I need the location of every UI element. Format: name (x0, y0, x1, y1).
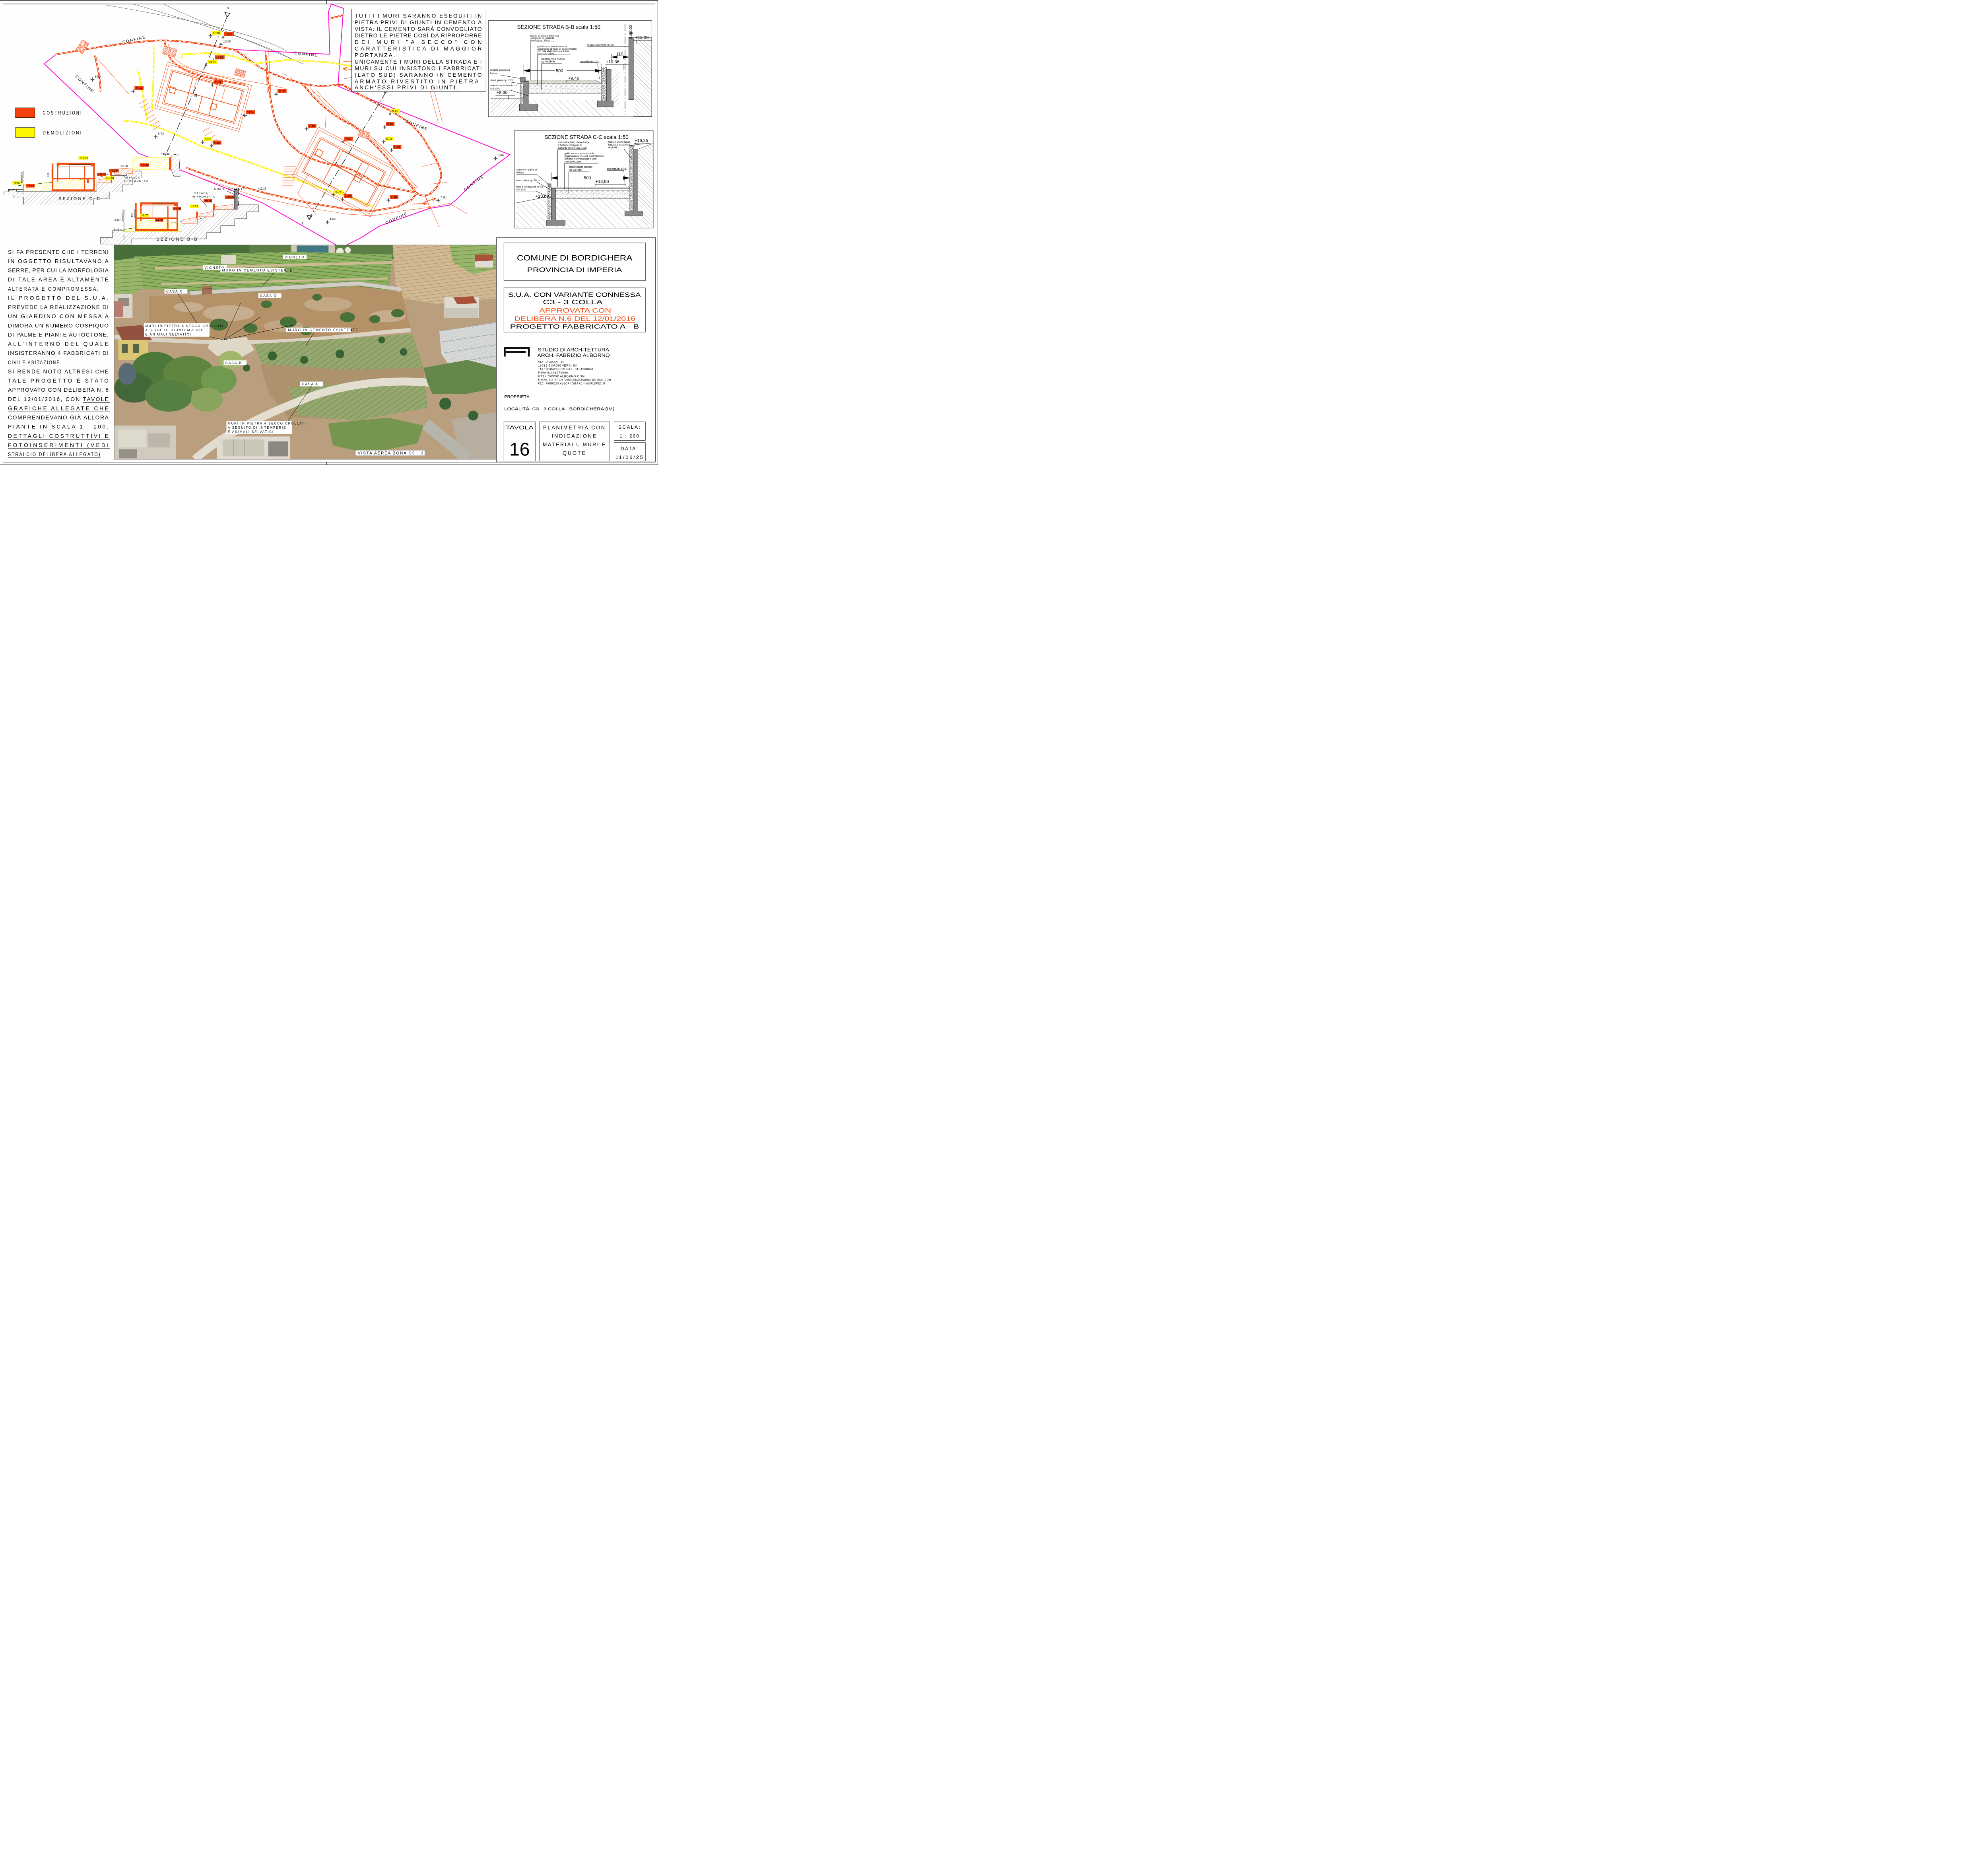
svg-text:DI PALME E PIANTE AUTOCTONE,: DI PALME E PIANTE AUTOCTONE, (8, 332, 110, 338)
svg-text:APPROVATA CON: APPROVATA CON (539, 307, 611, 314)
svg-text:muro e fondazione in c.a.: muro e fondazione in c.a. (490, 84, 518, 87)
svg-text:+12.26: +12.26 (635, 35, 649, 40)
svg-text:APPROVATO CON DELIBERA N. 6: APPROVATO CON DELIBERA N. 6 (8, 387, 110, 393)
svg-text:150: 150 (131, 213, 134, 217)
svg-text:+8.44: +8.44 (27, 185, 34, 188)
svg-text:MURI IN PIETRA A SECCO CROLLAT: MURI IN PIETRA A SECCO CROLLATI (228, 422, 306, 426)
svg-text:8.44: 8.44 (214, 141, 220, 144)
svg-text:QUOTE: QUOTE (563, 450, 586, 456)
svg-text:FOTOINSERIMENTI (VEDI: FOTOINSERIMENTI (VEDI (8, 442, 110, 448)
svg-text:spessore 15cm.: spessore 15cm. (565, 161, 582, 163)
svg-text:getto in c.a. eventualmente: getto in c.a. eventualmente (565, 152, 595, 155)
svg-text:muro in pietra locale: muro in pietra locale (608, 141, 631, 144)
svg-text:IN PROGETTO: IN PROGETTO (124, 180, 148, 183)
svg-text:150: 150 (47, 173, 50, 177)
svg-text:rivest. pietra sp. 20cm: rivest. pietra sp. 20cm (516, 179, 540, 182)
svg-text:4.60: 4.60 (330, 217, 336, 221)
svg-text:SCALA:: SCALA: (618, 424, 641, 430)
svg-text:MATERIALI, MURI E: MATERIALI, MURI E (543, 441, 606, 447)
svg-text:muro e fondazione in c.a.: muro e fondazione in c.a. (516, 185, 544, 188)
svg-text:sp varibile: sp varibile (569, 168, 582, 171)
svg-text:+4.60: +4.60 (156, 219, 163, 222)
svg-text:COMUNE DI BORDIGHERA: COMUNE DI BORDIGHERA (517, 254, 633, 262)
svg-text:500: 500 (584, 176, 591, 181)
svg-text:13.00: 13.00 (223, 39, 231, 43)
svg-text:livellante (binder) sp. 10cm: livellante (binder) sp. 10cm (558, 147, 588, 150)
svg-text:PROGETTO FABBRICATO A - B: PROGETTO FABBRICATO A - B (510, 323, 639, 330)
svg-text:agganciato al muro di contenim: agganciato al muro di contenimento (565, 155, 604, 158)
svg-text:7.40: 7.40 (346, 137, 351, 141)
svg-text:E ANIMALI SELVATICI: E ANIMALI SELVATICI (146, 333, 192, 336)
svg-text:IL PROGETTO DEL S.U.A.: IL PROGETTO DEL S.U.A. (8, 295, 110, 301)
svg-text:finitura: finitura (490, 72, 497, 75)
svg-text:B: B (194, 93, 197, 98)
svg-text:1230: 1230 (216, 56, 223, 59)
svg-text:+16.35: +16.35 (161, 153, 170, 155)
svg-text:+5.75: +5.75 (142, 214, 149, 217)
svg-text:PROVINCIA DI IMPERIA: PROVINCIA DI IMPERIA (527, 266, 622, 274)
svg-text:CASA D: CASA D (260, 294, 277, 298)
svg-text:1 : 200: 1 : 200 (620, 433, 640, 439)
svg-text:+12.26: +12.26 (258, 187, 266, 190)
svg-text:TAVOLA: TAVOLA (506, 425, 534, 431)
svg-text:indicativo: indicativo (516, 188, 526, 191)
svg-text:P.IVA 01401970080: P.IVA 01401970080 (538, 371, 568, 375)
svg-text:8.23: 8.23 (386, 137, 392, 141)
svg-text:finitura: finitura (516, 171, 524, 174)
svg-text:+9.07: +9.07 (14, 182, 21, 185)
svg-text:rivest. pietra sp. 20cm: rivest. pietra sp. 20cm (490, 79, 514, 82)
svg-text:PORTANZA.: PORTANZA. (355, 52, 396, 58)
svg-text:cordolo in pietra di: cordolo in pietra di (516, 168, 537, 171)
svg-text:GRAFICHE ALLEGATE CHE: GRAFICHE ALLEGATE CHE (8, 406, 110, 412)
svg-text:confine: confine (628, 25, 633, 39)
svg-text:SEZIONE STRADA C-C scala 1:50: SEZIONE STRADA C-C scala 1:50 (544, 134, 629, 140)
svg-text:+10.36: +10.36 (606, 60, 619, 64)
svg-text:(LATO SUD) SARANNO IN CEMENTO: (LATO SUD) SARANNO IN CEMENTO (355, 72, 483, 78)
svg-text:1424: 1424 (95, 75, 102, 78)
svg-text:DEMOLIZIONI: DEMOLIZIONI (43, 130, 83, 136)
svg-text:1380: 1380 (225, 33, 232, 36)
svg-text:11/06/25: 11/06/25 (615, 455, 644, 460)
svg-text:DIETRO LE PIETRE COSÌ DA RIPRO: DIETRO LE PIETRE COSÌ DA RIPROPORRE (355, 32, 483, 39)
svg-text:getto in c.a. eventualmente: getto in c.a. eventualmente (537, 45, 567, 48)
svg-text:4.60: 4.60 (345, 194, 351, 198)
svg-text:INDICAZIONE: INDICAZIONE (552, 433, 598, 439)
svg-text:SI FA PRESENTE CHE I TERRENI: SI FA PRESENTE CHE I TERRENI (8, 249, 110, 255)
svg-text:6.73: 6.73 (158, 132, 164, 135)
svg-text:+8.92: +8.92 (191, 205, 198, 208)
svg-text:E ANIMALI SELVATICI: E ANIMALI SELVATICI (228, 430, 274, 434)
svg-text:LOCALITÀ: C3 - 3 COLLA - BOR: LOCALITÀ: C3 - 3 COLLA - BORDIGHERA (IM) (504, 406, 614, 412)
svg-text:+13.80: +13.80 (141, 164, 149, 167)
svg-text:A: A (335, 161, 338, 166)
svg-text:IN PROGETTO: IN PROGETTO (192, 195, 216, 198)
svg-text:VISTA: IL CEMENTO SARÀ CONVOGL: VISTA: IL CEMENTO SARÀ CONVOGLIATO (355, 26, 483, 32)
svg-text:1150: 1150 (278, 89, 285, 93)
svg-text:+13,00: +13,00 (536, 194, 549, 199)
svg-text:DEL 12/01/2016, CON TAVOLE: DEL 12/01/2016, CON TAVOLE (8, 396, 110, 402)
svg-text:STRADA: STRADA (126, 177, 140, 179)
svg-text:ALTERATA E COMPROMESSA.: ALTERATA E COMPROMESSA. (8, 286, 99, 292)
svg-text:+2.10: +2.10 (113, 228, 120, 231)
svg-text:18012 BORDIGHERA, IM: 18012 BORDIGHERA, IM (538, 364, 577, 367)
svg-text:STRALCIO DELIBERA ALLEGATO): STRALCIO DELIBERA ALLEGATO) (8, 451, 101, 457)
svg-text:PROPRIETÀ:: PROPRIETÀ: (504, 394, 531, 399)
svg-text:CONFINE: CONFINE (121, 210, 124, 222)
svg-text:HTTP://WWW.ALBORNO.COM: HTTP://WWW.ALBORNO.COM (538, 375, 584, 378)
svg-text:VIA LAGAZZI, 10: VIA LAGAZZI, 10 (538, 360, 564, 364)
svg-text:CASA B: CASA B (225, 361, 242, 365)
svg-text:+8.30: +8.30 (497, 91, 508, 95)
svg-text:DELIBERA N.6 DEL 12/01/2016: DELIBERA N.6 DEL 12/01/2016 (514, 315, 636, 322)
svg-text:VIGNETO: VIGNETO (285, 255, 305, 259)
svg-text:MURI SU CUI INSISTONO I FABBRI: MURI SU CUI INSISTONO I FABBRICATI (355, 66, 483, 72)
svg-text:MURO IN CEMENTO ESISTENTE: MURO IN CEMENTO ESISTENTE (288, 328, 359, 332)
svg-text:murata a vista priva: murata a vista priva (608, 144, 630, 146)
svg-text:SEZIONE STRADA B-B scala 1:50: SEZIONE STRADA B-B scala 1:50 (517, 24, 601, 30)
svg-text:ARCH. FABRIZIO ALBORNO: ARCH. FABRIZIO ALBORNO (538, 353, 610, 358)
svg-text:+13,80: +13,80 (596, 179, 609, 184)
svg-text:+12.30: +12.30 (111, 170, 119, 173)
svg-text:+15.20: +15.20 (80, 157, 88, 160)
svg-text:STRADA: STRADA (194, 192, 208, 195)
svg-text:IN OGGETTO RISULTAVANO A: IN OGGETTO RISULTAVANO A (8, 258, 110, 264)
svg-text:110: 110 (616, 52, 623, 57)
svg-text:1124: 1124 (247, 111, 254, 114)
svg-text:PEC: FABRIZIO.ALBORNO@ARCHIWOR: PEC: FABRIZIO.ALBORNO@ARCHIWORLDPEC.IT (538, 382, 606, 385)
svg-text:+4.60: +4.60 (113, 219, 120, 222)
svg-text:+11.24: +11.24 (98, 173, 106, 176)
svg-text:cunetta in c.l.s.: cunetta in c.l.s. (607, 167, 627, 171)
svg-text:7.40: 7.40 (309, 124, 315, 128)
svg-text:PLANIMETRIA CON: PLANIMETRIA CON (543, 425, 606, 431)
svg-text:E-MAIL TO: ARCH.FABRIZIOALBORN: E-MAIL TO: ARCH.FABRIZIOALBORNO@GMAIL.CO… (538, 378, 611, 382)
svg-text:di giunti: di giunti (608, 146, 617, 149)
svg-text:7.90: 7.90 (441, 195, 447, 199)
svg-text:8.66: 8.66 (498, 153, 504, 157)
svg-text:di finitura compreso di: di finitura compreso di (558, 144, 582, 147)
svg-text:SERRE, PER CUI LA MORFOLOGIA: SERRE, PER CUI LA MORFOLOGIA (8, 268, 110, 274)
svg-text:1520: 1520 (213, 31, 220, 35)
svg-text:A SEGUITO DI INTEMPERIE: A SEGUITO DI INTEMPERIE (146, 328, 204, 332)
svg-text:10.81: 10.81 (208, 60, 216, 64)
svg-text:A SEGUITO DI INTEMPERIE: A SEGUITO DI INTEMPERIE (228, 426, 286, 430)
svg-text:DI TALE AREA È ALTAMENTE: DI TALE AREA È ALTAMENTE (8, 276, 110, 283)
svg-text:muro esistente in cls: muro esistente in cls (587, 43, 614, 47)
svg-text:+16,35: +16,35 (635, 138, 648, 143)
svg-text:DATA:: DATA: (621, 446, 639, 451)
svg-text:ANCH'ESSI PRIVI DI GIUNTI.: ANCH'ESSI PRIVI DI GIUNTI. (355, 85, 459, 91)
svg-text:con rete elettrosaldata d 8cm,: con rete elettrosaldata d 8cm, (565, 158, 598, 161)
svg-text:CARATTERISTICA DI MAGGIOR: CARATTERISTICA DI MAGGIOR (355, 46, 483, 52)
svg-text:9.05: 9.05 (392, 109, 398, 113)
svg-text:16: 16 (509, 439, 530, 459)
svg-text:+6.73: +6.73 (8, 189, 15, 192)
svg-text:C3 - 3 COLLA: C3 - 3 COLLA (543, 299, 603, 306)
svg-text:INSISTERANNO 4 FABBRICATI DI: INSISTERANNO 4 FABBRICATI DI (8, 350, 110, 356)
svg-text:cordolo in pietra di: cordolo in pietra di (490, 69, 510, 72)
svg-text:+13.00: +13.00 (119, 165, 128, 168)
svg-text:indicativo: indicativo (490, 87, 501, 90)
svg-text:STUDIO DI ARCHITETTURA: STUDIO DI ARCHITETTURA (538, 348, 610, 352)
svg-text:1124: 1124 (136, 86, 142, 90)
svg-text:PIETRA PRIVI DI GIUNTI IN CEME: PIETRA PRIVI DI GIUNTI IN CEMENTO A (355, 19, 483, 25)
svg-text:CASA A: CASA A (302, 382, 318, 386)
svg-text:500: 500 (556, 68, 563, 73)
svg-text:+10.36: +10.36 (226, 196, 235, 199)
svg-text:TEL: 0184262529 FAX: 018426866: TEL: 0184262529 FAX: 0184268661 (538, 367, 594, 371)
svg-text:COSTRUZIONI: COSTRUZIONI (43, 110, 83, 116)
svg-text:8.30: 8.30 (394, 146, 400, 149)
svg-text:COMPRENDEVANO GIÀ ALLORA: COMPRENDEVANO GIÀ ALLORA (8, 414, 110, 421)
svg-text:MURI IN PIETRA A SECCO CROLLAT: MURI IN PIETRA A SECCO CROLLATI (146, 325, 224, 328)
svg-text:UN GIARDINO CON MESSA A: UN GIARDINO CON MESSA A (8, 313, 110, 319)
svg-text:SI RENDE NOTO ALTRESÌ CHE: SI RENDE NOTO ALTRESÌ CHE (8, 368, 110, 375)
svg-text:+7.40: +7.40 (174, 208, 181, 210)
svg-text:CASA C: CASA C (166, 289, 183, 293)
svg-text:9.46: 9.46 (387, 122, 393, 126)
svg-text:manto di asfalto colore beige: manto di asfalto colore beige (558, 141, 590, 144)
svg-text:MURO IN CEMENTO ESISTENTE: MURO IN CEMENTO ESISTENTE (222, 268, 293, 272)
svg-text:MURO ESISTENTE: MURO ESISTENTE (214, 188, 245, 191)
svg-text:+10.81: +10.81 (106, 177, 115, 180)
svg-text:S.U.A. CON VARIANTE CONNESSA: S.U.A. CON VARIANTE CONNESSA (508, 292, 641, 298)
svg-text:SEZIONE C-C: SEZIONE C-C (58, 196, 101, 201)
svg-text:1124: 1124 (215, 80, 221, 84)
svg-text:PIANTE IN SCALA 1 : 100,: PIANTE IN SCALA 1 : 100, (8, 424, 110, 430)
svg-text:7.40: 7.40 (391, 195, 397, 199)
svg-text:sp varibile: sp varibile (542, 60, 555, 63)
svg-text:UNICAMENTE I MURI DELLA STRADA: UNICAMENTE I MURI DELLA STRADA E I (355, 59, 483, 65)
svg-text:TUTTI I MURI SARANNO ESEGUITI: TUTTI I MURI SARANNO ESEGUITI IN (355, 13, 483, 19)
svg-text:VISTA AEREA ZONA C3 - 3: VISTA AEREA ZONA C3 - 3 (358, 451, 424, 456)
svg-text:9.07: 9.07 (205, 137, 211, 141)
svg-text:PREVEDE LA REALIZZAZIONE DI: PREVEDE LA REALIZZAZIONE DI (8, 304, 110, 310)
svg-text:SEZIONE B-B: SEZIONE B-B (156, 237, 198, 242)
svg-text:DIMORA UN NUMERO COSPIQUO: DIMORA UN NUMERO COSPIQUO (8, 323, 110, 328)
svg-text:CIVILE ABITAZIONE.: CIVILE ABITAZIONE. (8, 360, 62, 365)
svg-text:+9.46: +9.46 (205, 200, 212, 202)
svg-text:5.75: 5.75 (336, 190, 342, 194)
